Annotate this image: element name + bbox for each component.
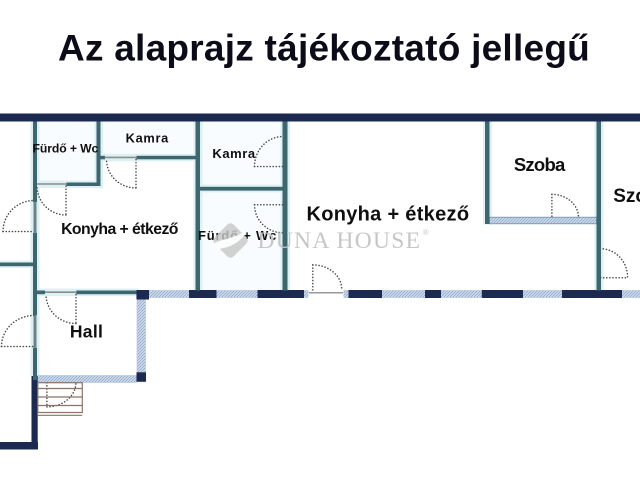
svg-text:Az alaprajz tájékoztató jelleg: Az alaprajz tájékoztató jellegű	[58, 28, 590, 69]
svg-text:Hall: Hall	[70, 322, 103, 342]
svg-text:Konyha + étkező: Konyha + étkező	[306, 204, 469, 226]
svg-text:Kamra: Kamra	[126, 131, 170, 146]
svg-text:DUNA HOUSE: DUNA HOUSE	[258, 228, 422, 254]
svg-text:Kamra: Kamra	[212, 146, 255, 161]
svg-text:Szoba: Szoba	[514, 154, 566, 175]
svg-text:Szoba: Szoba	[613, 186, 640, 207]
svg-text:Konyha + étkező: Konyha + étkező	[61, 221, 179, 238]
svg-text:®: ®	[423, 227, 430, 237]
svg-text:Fürdő + Wc: Fürdő + Wc	[33, 142, 99, 156]
